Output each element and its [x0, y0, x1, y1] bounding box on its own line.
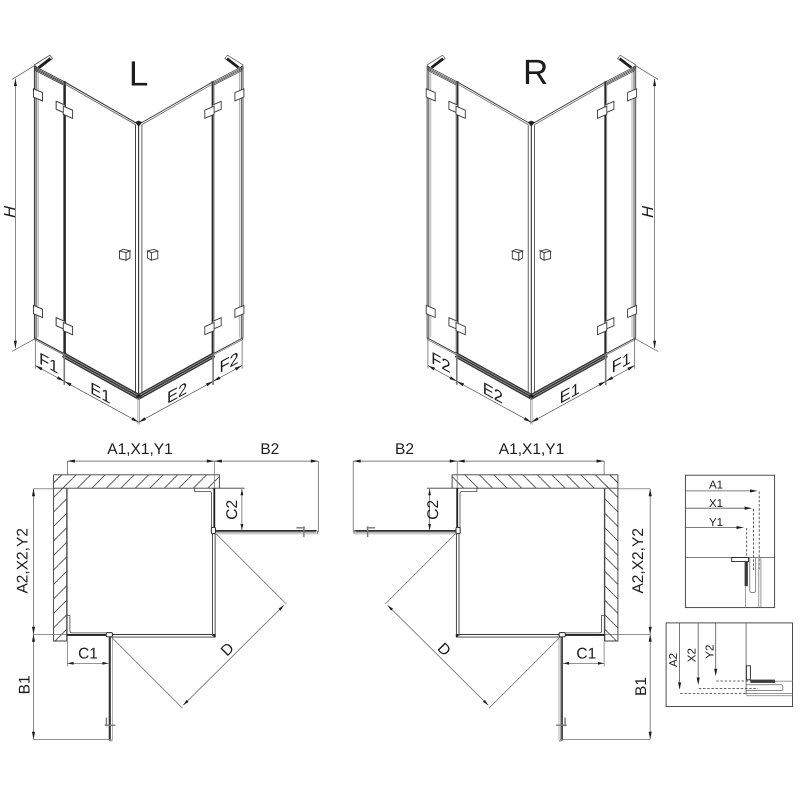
svg-text:C2: C2	[425, 500, 442, 520]
svg-text:Y2: Y2	[705, 645, 717, 659]
svg-text:A2: A2	[668, 653, 680, 667]
svg-text:C1: C1	[78, 646, 98, 663]
svg-text:H: H	[2, 204, 19, 220]
svg-text:D: D	[218, 640, 238, 660]
svg-text:B2: B2	[260, 441, 279, 458]
svg-text:C2: C2	[224, 500, 241, 520]
svg-text:D: D	[434, 640, 454, 660]
svg-text:B2: B2	[395, 441, 414, 458]
svg-text:A1: A1	[709, 479, 723, 491]
svg-text:X2: X2	[687, 648, 699, 662]
svg-text:E1: E1	[90, 379, 110, 408]
svg-text:A2,X2,Y2: A2,X2,Y2	[630, 528, 647, 594]
svg-text:B1: B1	[633, 677, 650, 696]
svg-text:B1: B1	[17, 675, 34, 694]
svg-text:A1,X1,Y1: A1,X1,Y1	[107, 441, 173, 458]
svg-text:E2: E2	[167, 379, 187, 408]
svg-text:R: R	[523, 53, 548, 92]
svg-text:F1: F1	[39, 349, 58, 378]
svg-text:E1: E1	[560, 379, 580, 408]
svg-text:E2: E2	[483, 379, 503, 408]
svg-text:A1,X1,Y1: A1,X1,Y1	[499, 441, 565, 458]
svg-text:C1: C1	[576, 646, 596, 663]
svg-text:A2,X2,Y2: A2,X2,Y2	[14, 528, 31, 594]
svg-text:L: L	[129, 55, 148, 94]
